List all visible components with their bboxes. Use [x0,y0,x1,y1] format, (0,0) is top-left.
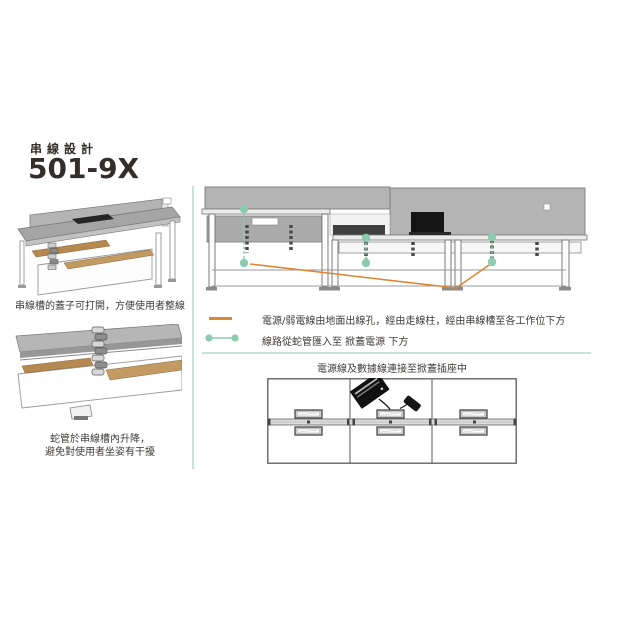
legend-orange-line-icon [209,317,232,320]
workstation-side-view-illustration [200,183,592,301]
socket [295,410,322,418]
figure2-caption-line1: 蛇管於串線槽內升降， [10,433,190,446]
leg-feet [206,287,571,291]
vertical-divider [192,186,194,469]
legend-item-1: 電源/弱電線由地面出線孔，經由走線柱，經由串線槽至各工作位下方 [262,312,565,327]
bottom-diagram-caption: 電源線及數據線連接至掀蓋插座中 [267,360,517,375]
socket [377,427,404,435]
top-view-power-diagram [267,378,517,464]
back-tray-shadow [333,225,385,235]
horizontal-divider [202,352,591,354]
desk-open-tray-illustration [14,195,186,298]
flip-lid-slot [252,218,278,225]
catalog-page: 串線設計 501-9X 串線槽的蓋子可打開，方便使用者整線 [0,0,620,620]
desk-leg [170,221,175,279]
conduit-closeup-illustration [14,324,182,429]
figure1-caption: 串線槽的蓋子可打開，方便使用者整線 [10,300,190,313]
legend-green-dotted-icon [204,332,240,344]
desk-top-raised [202,209,330,214]
desk-leg [156,233,161,285]
page-title-model: 501-9X [28,152,139,185]
legend-item-2: 線路從蛇管匯入至 掀蓋電源 下方 [262,333,408,348]
socket [460,410,487,418]
socket [295,427,322,435]
desk-leg [20,241,24,285]
socket [377,410,404,418]
figure2-caption-line2: 避免對使用者坐姿有干擾 [10,446,190,459]
socket [460,427,487,435]
privacy-screen-left [205,187,390,209]
desk-top-sitting [333,235,587,240]
laptop [411,212,444,233]
figure2-caption: 蛇管於串線槽內升降， 避免對使用者坐姿有干擾 [10,433,190,459]
